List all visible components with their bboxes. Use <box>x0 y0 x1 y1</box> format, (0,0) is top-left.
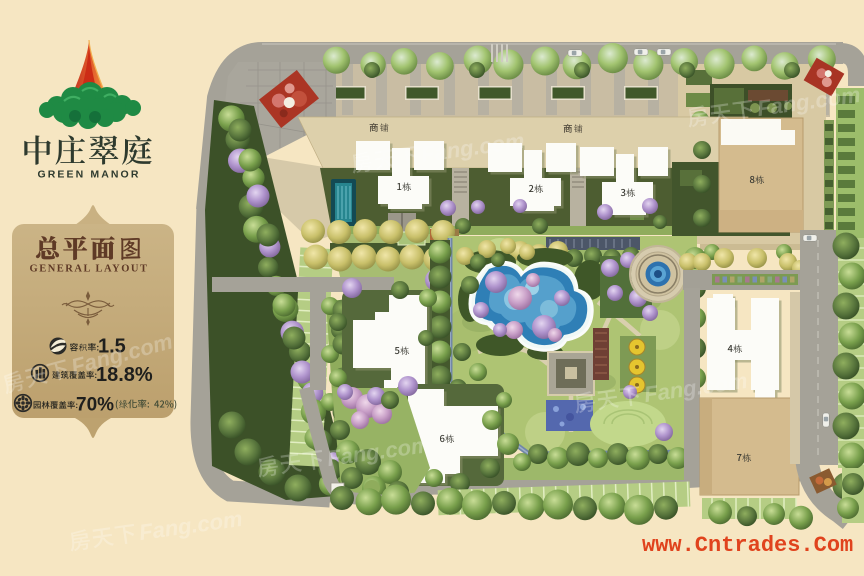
svg-text:70%: 70% <box>76 395 114 416</box>
svg-text:GENERAL LAYOUT: GENERAL LAYOUT <box>30 264 149 275</box>
svg-text:www.Cntrades.Com: www.Cntrades.Com <box>642 533 853 558</box>
svg-text:GREEN MANOR: GREEN MANOR <box>37 169 140 181</box>
